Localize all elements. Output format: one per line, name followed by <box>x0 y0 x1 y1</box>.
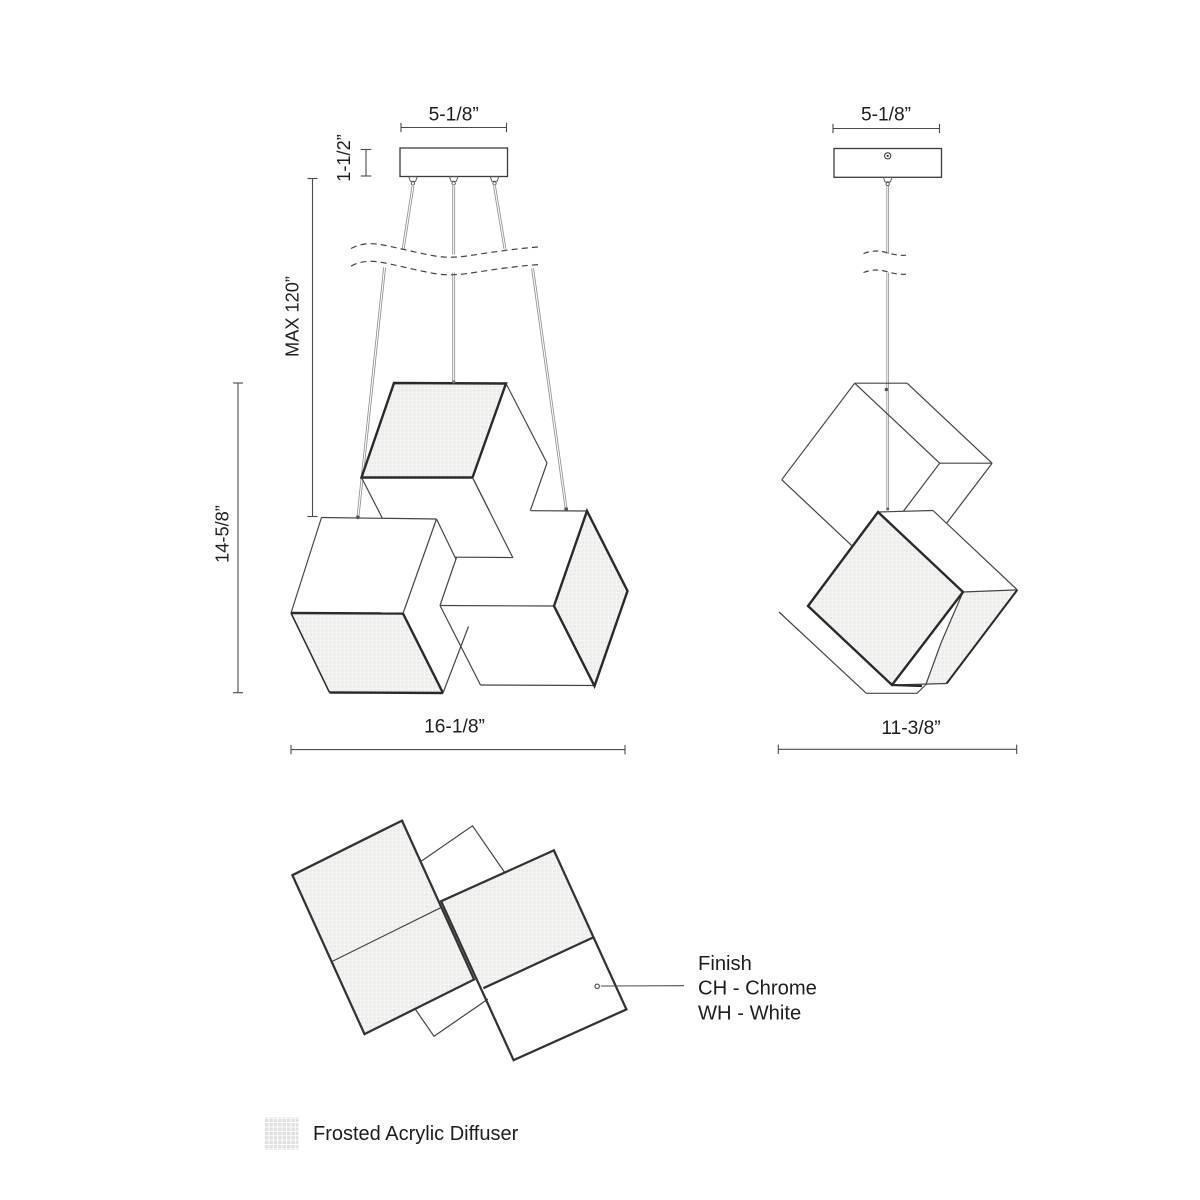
svg-text:5-1/8”: 5-1/8” <box>429 105 479 126</box>
svg-text:CH - Chrome: CH - Chrome <box>698 978 817 1000</box>
svg-text:1-1/2”: 1-1/2” <box>334 134 354 182</box>
svg-text:Finish: Finish <box>698 953 752 975</box>
svg-text:11-3/8”: 11-3/8” <box>881 718 940 739</box>
svg-text:14-5/8”: 14-5/8” <box>213 505 233 563</box>
svg-text:16-1/8”: 16-1/8” <box>424 717 485 738</box>
svg-text:Frosted Acrylic Diffuser: Frosted Acrylic Diffuser <box>313 1123 519 1145</box>
svg-text:MAX 120”: MAX 120” <box>283 276 303 357</box>
svg-text:5-1/8”: 5-1/8” <box>861 105 911 126</box>
svg-text:WH - White: WH - White <box>698 1002 801 1024</box>
